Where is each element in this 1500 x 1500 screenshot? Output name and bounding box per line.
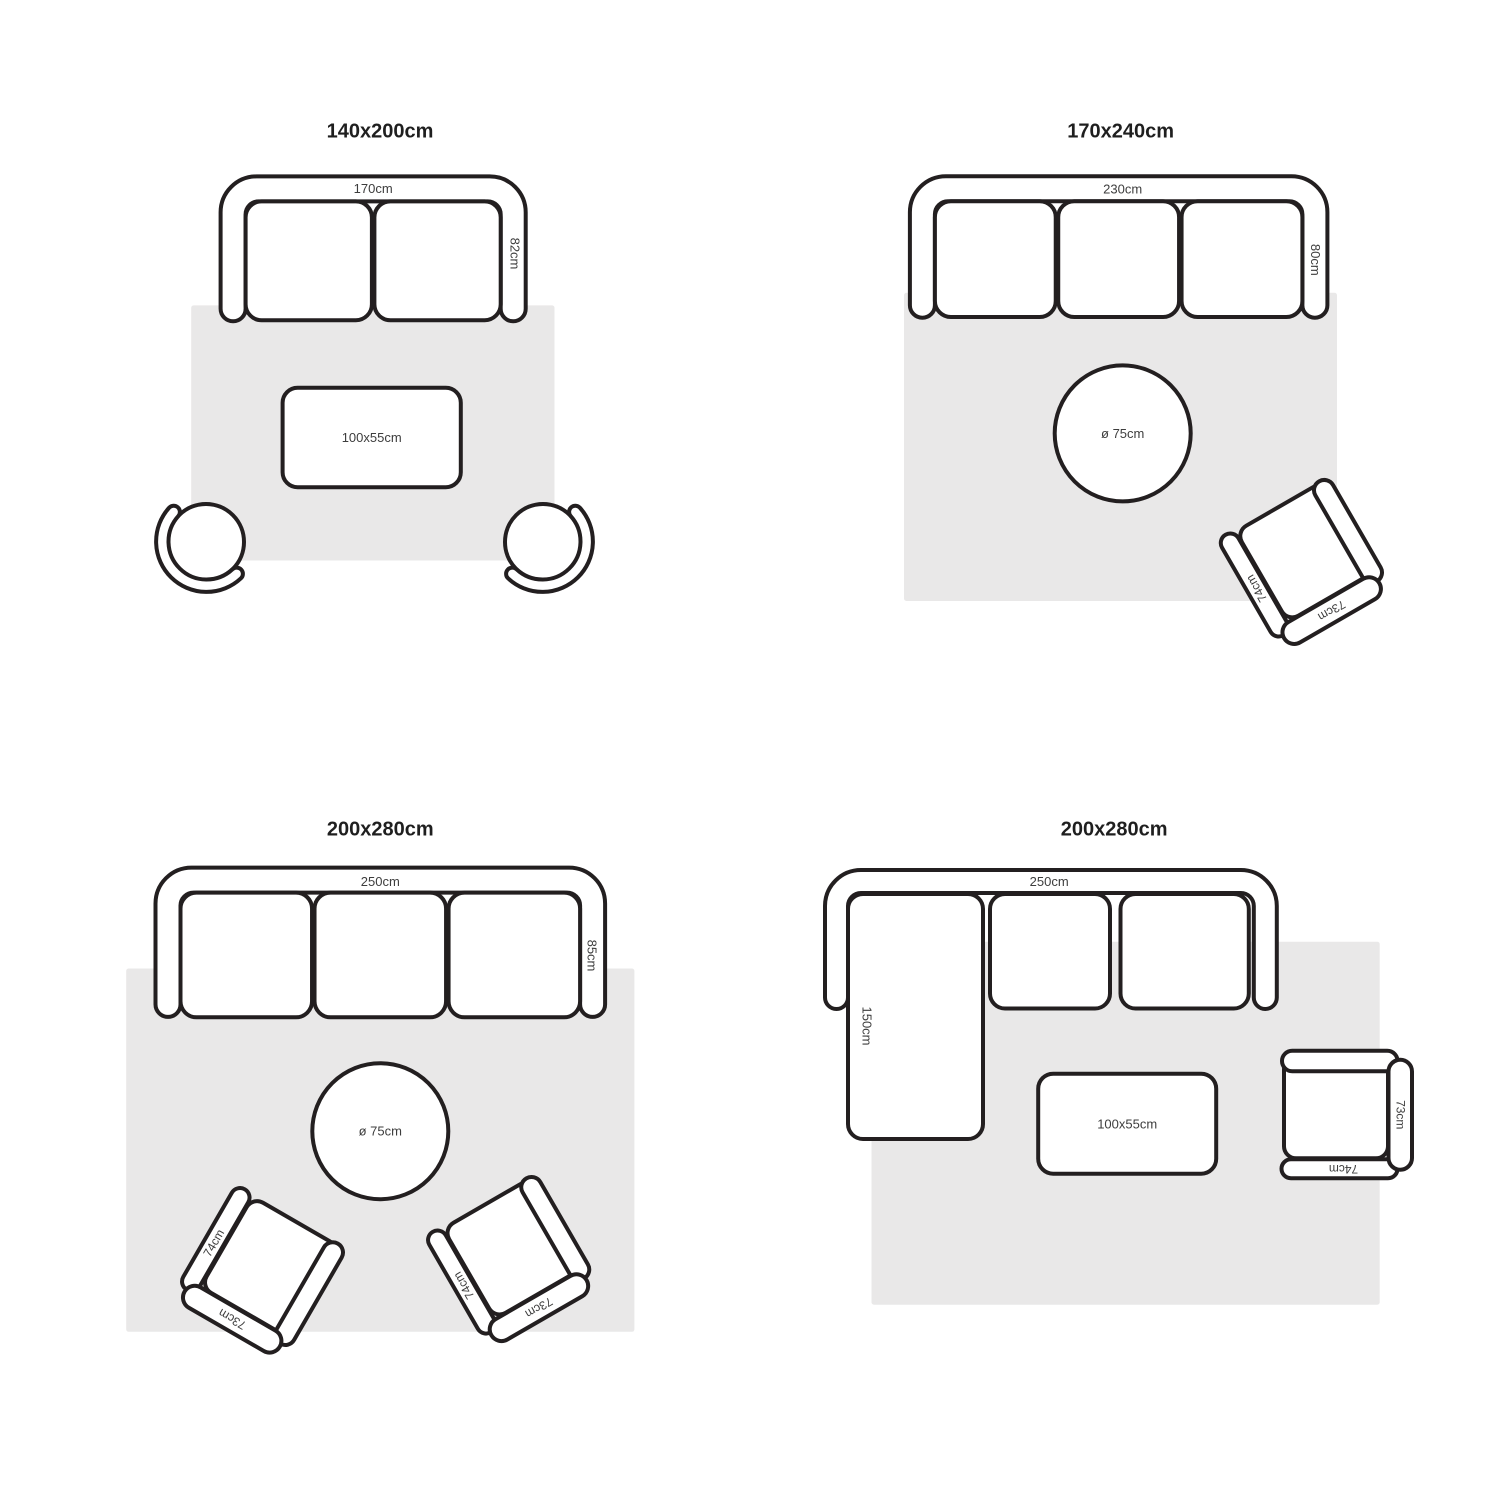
svg-text:100x55cm: 100x55cm (342, 430, 402, 445)
svg-text:250cm: 250cm (361, 874, 400, 889)
svg-text:230cm: 230cm (1103, 182, 1142, 197)
svg-text:200x280cm: 200x280cm (327, 819, 434, 841)
svg-text:82cm: 82cm (507, 238, 522, 270)
svg-text:150cm: 150cm (860, 1006, 875, 1045)
svg-text:80cm: 80cm (1308, 244, 1323, 276)
svg-text:100x55cm: 100x55cm (1097, 1117, 1157, 1132)
svg-text:200x280cm: 200x280cm (1061, 819, 1168, 841)
svg-text:73cm: 73cm (1393, 1100, 1407, 1129)
svg-text:170x240cm: 170x240cm (1067, 121, 1174, 143)
svg-text:ø 75cm: ø 75cm (359, 1124, 402, 1139)
svg-text:170cm: 170cm (354, 181, 393, 196)
svg-text:ø 75cm: ø 75cm (1101, 426, 1144, 441)
svg-text:140x200cm: 140x200cm (327, 121, 434, 143)
svg-text:250cm: 250cm (1030, 874, 1069, 889)
svg-text:74cm: 74cm (1329, 1162, 1358, 1176)
svg-text:85cm: 85cm (585, 940, 600, 972)
